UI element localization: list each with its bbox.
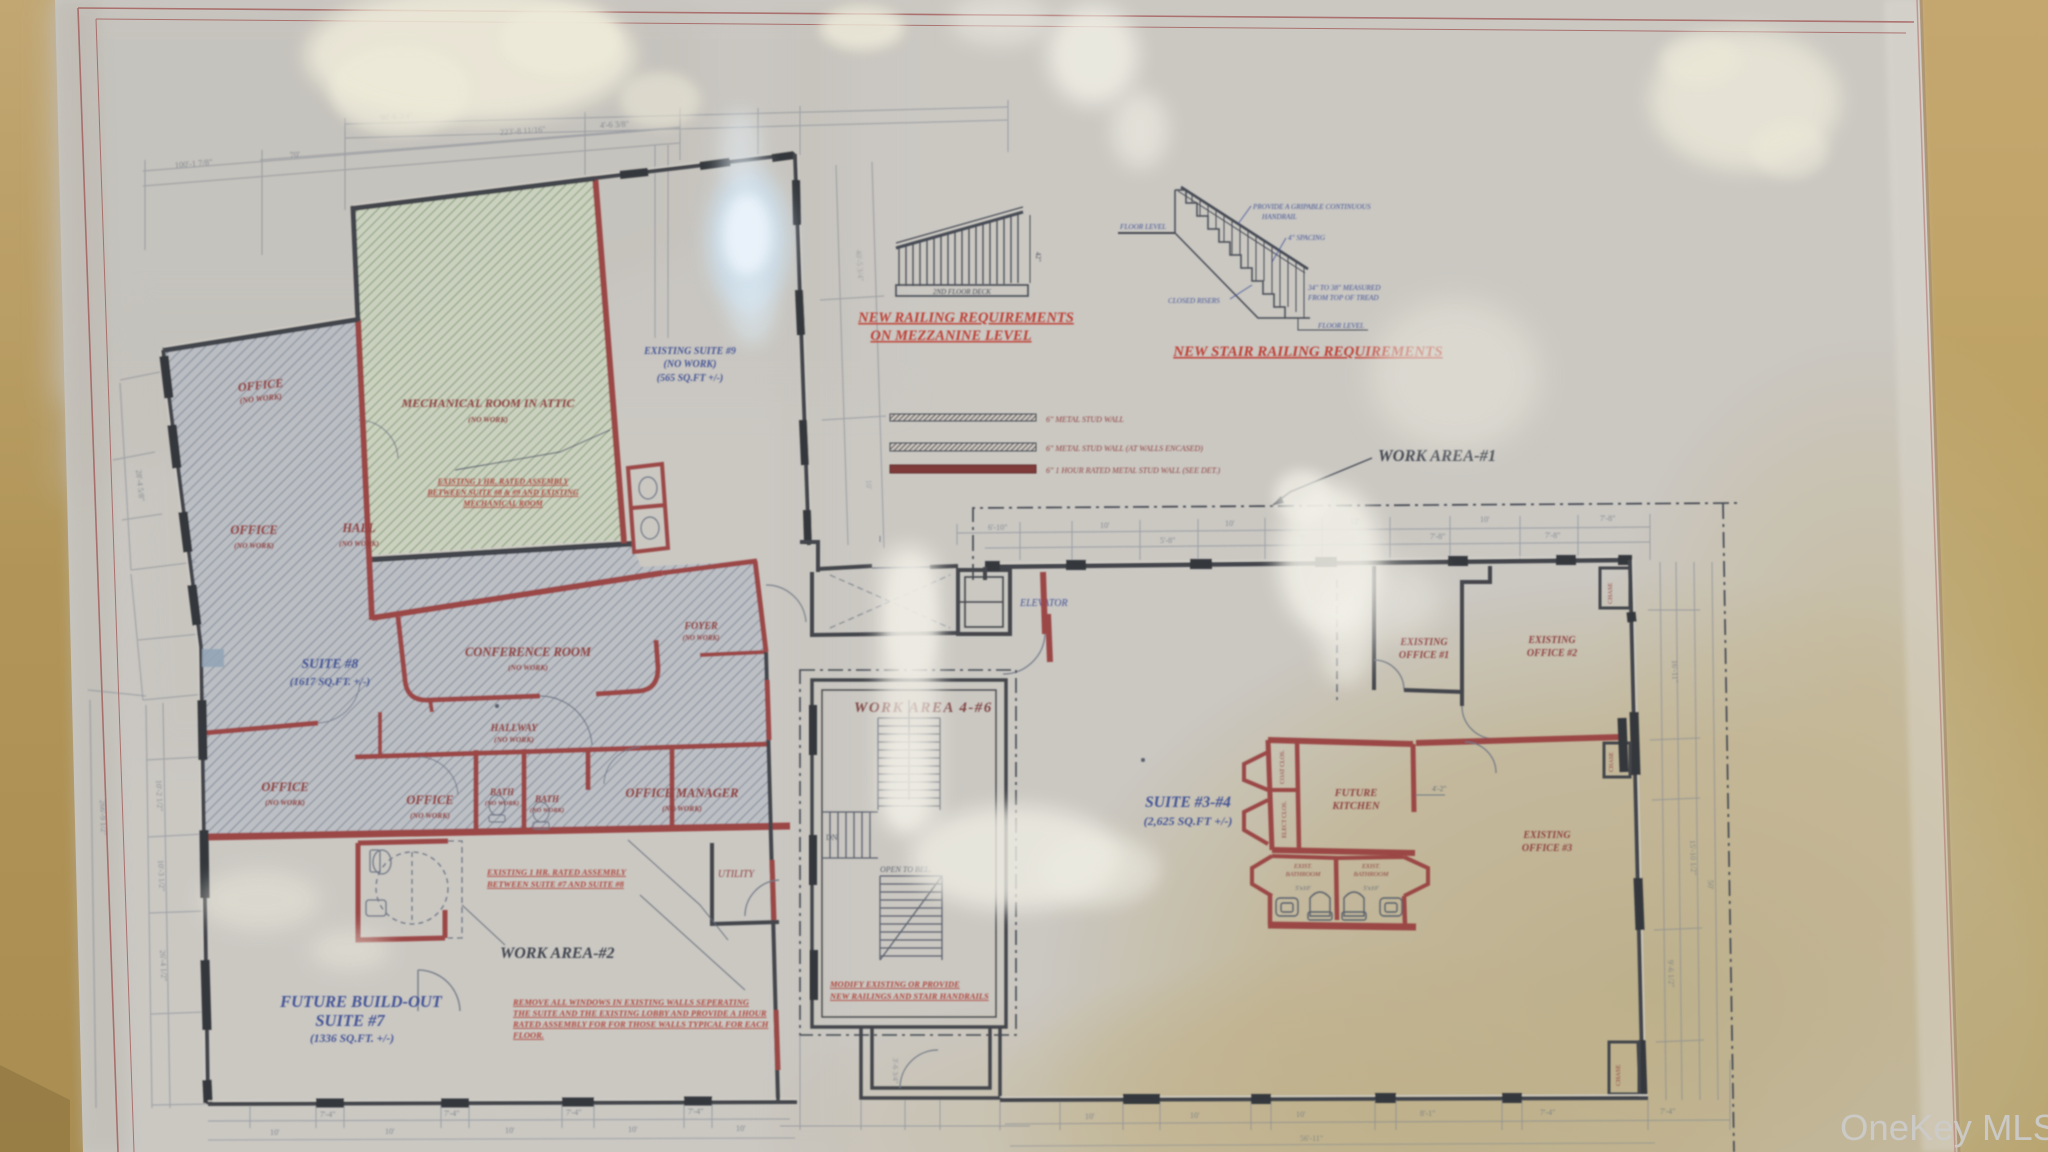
svg-text:OneKey MLS: OneKey MLS <box>1840 1107 2048 1148</box>
